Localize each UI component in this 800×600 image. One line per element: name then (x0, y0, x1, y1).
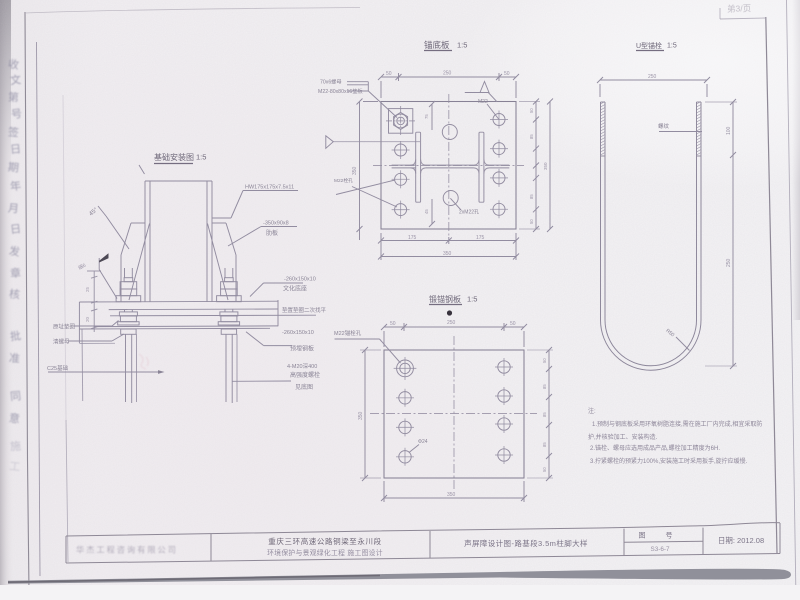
svg-text:日: 日 (9, 223, 21, 236)
svg-text:50: 50 (542, 467, 547, 472)
svg-text:85: 85 (529, 134, 534, 139)
svg-text:250: 250 (726, 258, 732, 267)
svg-text:250: 250 (648, 74, 657, 80)
svg-text:注:: 注: (588, 407, 596, 415)
svg-text:华杰工程咨询有限公司: 华杰工程咨询有限公司 (76, 545, 178, 555)
svg-text:文化底座: 文化底座 (283, 285, 307, 293)
svg-text:250: 250 (447, 320, 456, 326)
svg-text:肋板: 肋板 (266, 229, 278, 237)
svg-text:350: 350 (358, 411, 364, 420)
svg-text:45: 45 (424, 209, 429, 214)
svg-text:-260x150x10: -260x150x10 (284, 277, 316, 283)
svg-text:25: 25 (85, 286, 90, 292)
svg-text:声屏障设计图-路基段3.5m柱脚大样: 声屏障设计图-路基段3.5m柱脚大样 (464, 538, 588, 548)
svg-text:S3-6-7: S3-6-7 (651, 546, 670, 553)
svg-text:350: 350 (352, 166, 358, 175)
svg-text:同: 同 (9, 390, 21, 403)
svg-text:-350x90x8: -350x90x8 (263, 221, 289, 227)
svg-text:350: 350 (543, 162, 548, 170)
svg-text:250: 250 (443, 71, 452, 77)
svg-text:3.拧紧螺栓的预紧力100%,安装施工时采用扳手,旋拧应缓慢: 3.拧紧螺栓的预紧力100%,安装施工时采用扳手,旋拧应缓慢. (590, 457, 748, 465)
svg-text:C25基础: C25基础 (47, 364, 69, 372)
svg-text:基础安装图: 基础安装图 (154, 152, 194, 162)
svg-text:螺纹: 螺纹 (658, 122, 670, 130)
svg-text:50: 50 (390, 321, 396, 327)
svg-text:意: 意 (8, 411, 21, 426)
svg-text:75: 75 (424, 114, 429, 119)
svg-text:85: 85 (542, 412, 547, 417)
svg-text:1:5: 1:5 (196, 153, 206, 162)
svg-text:M22: M22 (478, 99, 488, 105)
svg-text:日期: 2012.08: 日期: 2012.08 (718, 536, 764, 545)
svg-text:1.预制与钢底板采用环氧树脂连接,需在施工厂内完成,相宜采取: 1.预制与钢底板采用环氧树脂连接,需在施工厂内完成,相宜采取防 (592, 420, 762, 428)
svg-text:4-M20深400: 4-M20深400 (287, 362, 317, 370)
svg-text:批: 批 (9, 328, 22, 343)
svg-text:签: 签 (7, 125, 19, 140)
svg-text:锻锚钢板: 锻锚钢板 (429, 294, 461, 304)
svg-text:第: 第 (7, 90, 19, 105)
svg-text:发: 发 (8, 244, 21, 259)
svg-text:175: 175 (408, 235, 417, 241)
svg-text:85: 85 (542, 442, 547, 447)
svg-text:2.锚栓、螺母应选用成品产品,螺栓加工精度为6H.: 2.锚栓、螺母应选用成品产品,螺栓加工精度为6H. (590, 444, 720, 452)
svg-text:章: 章 (9, 265, 21, 280)
svg-text:文: 文 (9, 72, 21, 87)
svg-text:1:5: 1:5 (457, 41, 467, 50)
svg-text:175: 175 (476, 235, 485, 241)
svg-text:施: 施 (9, 439, 21, 453)
svg-text:护,并核验加工、安装构造.: 护,并核验加工、安装构造. (588, 433, 658, 441)
svg-text:高强度螺栓: 高强度螺栓 (290, 371, 320, 379)
svg-text:350: 350 (443, 251, 452, 257)
svg-text:50: 50 (529, 108, 534, 113)
svg-text:收: 收 (7, 57, 20, 72)
svg-text:见底图: 见底图 (295, 383, 313, 391)
svg-text:弟3/页: 弟3/页 (727, 3, 751, 14)
svg-text:年: 年 (9, 178, 22, 193)
svg-text:清螺母: 清螺母 (53, 338, 70, 346)
svg-text:垫置垫圈二次找平: 垫置垫圈二次找平 (282, 306, 327, 314)
svg-text:期: 期 (7, 161, 20, 175)
svg-text:50: 50 (542, 358, 547, 363)
svg-text:50: 50 (386, 71, 392, 77)
svg-text:U型锚栓: U型锚栓 (636, 41, 662, 50)
svg-text:HW175x175x7.5x11: HW175x175x7.5x11 (245, 185, 294, 191)
svg-text:50: 50 (504, 71, 510, 77)
svg-text:锚底板: 锚底板 (424, 40, 450, 50)
svg-text:85: 85 (529, 194, 534, 199)
svg-text:1:5: 1:5 (467, 295, 477, 304)
svg-text:环境保护与景观绿化工程 施工图设计: 环境保护与景观绿化工程 施工图设计 (267, 548, 383, 557)
svg-text:M22锚栓孔: M22锚栓孔 (334, 329, 362, 337)
svg-text:图 号: 图 号 (639, 532, 682, 540)
svg-text:重庆三环高速公路铜梁至永川段: 重庆三环高速公路铜梁至永川段 (268, 536, 381, 546)
svg-text:1:5: 1:5 (667, 43, 677, 50)
svg-text:20: 20 (85, 316, 90, 322)
svg-text:50: 50 (510, 321, 516, 327)
svg-text:-260x150x10: -260x150x10 (282, 330, 314, 336)
svg-text:工: 工 (8, 461, 20, 474)
svg-text:日: 日 (10, 143, 22, 156)
svg-text:2xM22孔: 2xM22孔 (459, 209, 479, 216)
svg-text:预埋钢板: 预埋钢板 (290, 345, 314, 353)
svg-text:350: 350 (447, 492, 456, 498)
svg-text:M22栓孔: M22栓孔 (334, 177, 353, 184)
svg-text:号: 号 (10, 107, 23, 121)
svg-text:核: 核 (8, 287, 20, 302)
svg-text:50: 50 (529, 219, 534, 224)
svg-text:准: 准 (8, 352, 20, 366)
svg-text:70x6螺母: 70x6螺母 (320, 78, 342, 86)
svg-text:月: 月 (7, 203, 19, 216)
svg-text:85: 85 (542, 384, 547, 389)
svg-text:100: 100 (726, 126, 732, 135)
svg-text:Φ24: Φ24 (418, 439, 428, 445)
svg-text:原址垫圈: 原址垫圈 (53, 323, 76, 331)
